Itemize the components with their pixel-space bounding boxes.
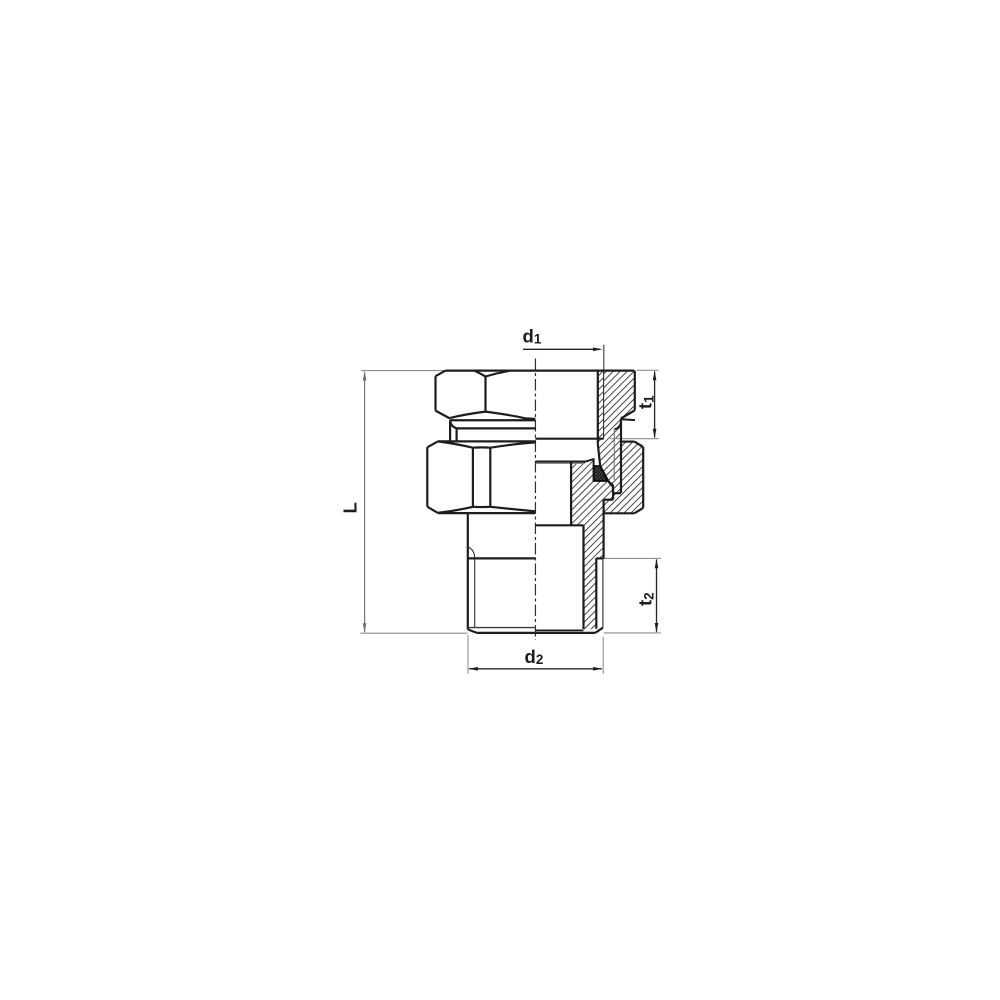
- svg-text:L: L: [340, 502, 361, 513]
